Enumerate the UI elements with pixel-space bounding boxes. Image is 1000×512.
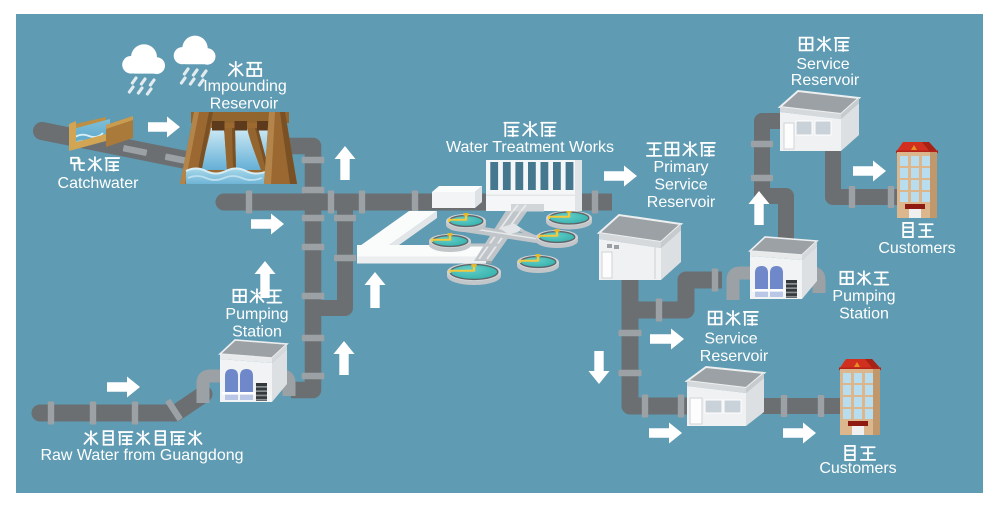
svg-text:Station: Station [232,324,282,341]
svg-text:Pumping: Pumping [225,306,288,323]
svg-text:Impounding: Impounding [203,78,287,95]
svg-text:Primary: Primary [653,159,708,176]
svg-text:Reservoir: Reservoir [210,96,279,113]
svg-text:Catchwater: Catchwater [58,175,140,192]
svg-text:Reservoir: Reservoir [647,194,716,211]
svg-text:Pumping: Pumping [832,288,895,305]
svg-text:Customers: Customers [819,460,896,477]
svg-text:Raw Water from Guangdong: Raw Water from Guangdong [40,447,243,464]
svg-text:Reservoir: Reservoir [700,348,769,365]
svg-text:Reservoir: Reservoir [791,72,860,89]
svg-text:Customers: Customers [878,240,955,257]
svg-text:Service: Service [704,331,757,348]
svg-text:Water Treatment Works: Water Treatment Works [446,139,614,156]
svg-text:Service: Service [654,177,707,194]
svg-text:Service: Service [796,56,849,73]
svg-text:Station: Station [839,306,889,323]
